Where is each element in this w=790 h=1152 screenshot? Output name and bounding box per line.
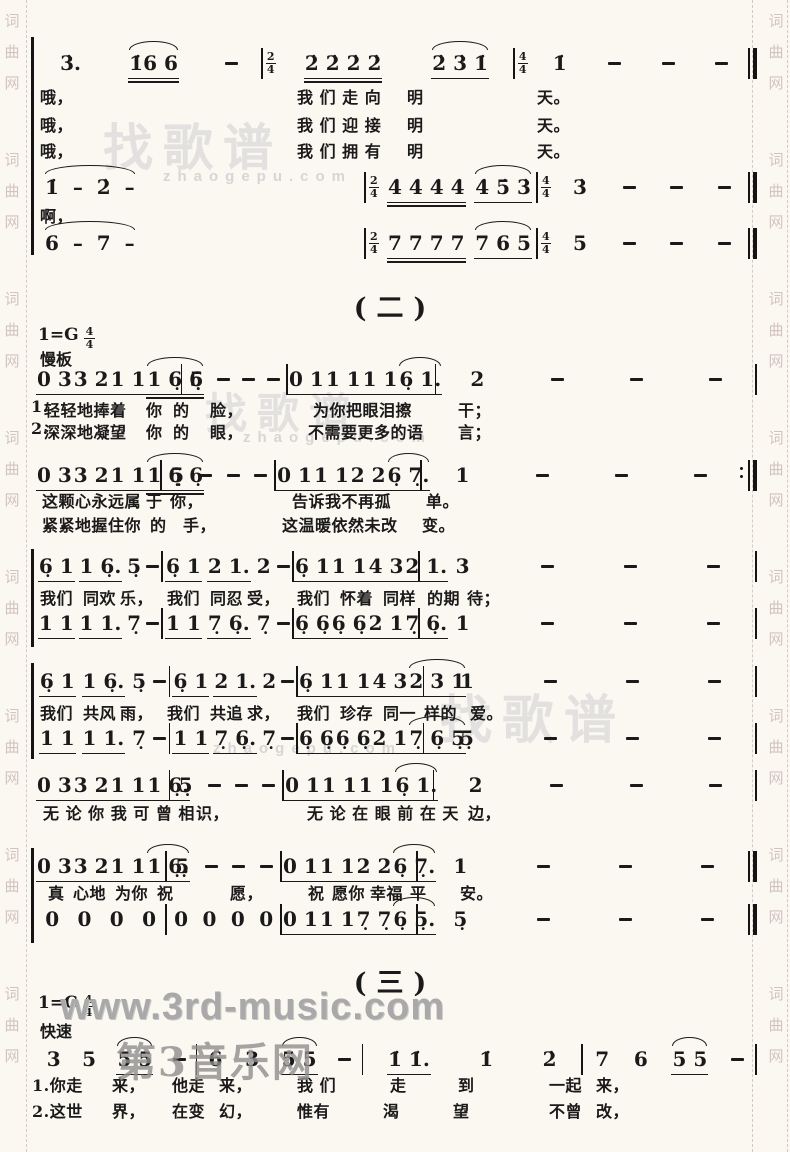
lyric-segment: 啊， xyxy=(40,203,73,227)
note-token: 0 xyxy=(230,906,246,934)
note-token: 6̣ 6̣ xyxy=(294,610,331,639)
rest-dash xyxy=(262,784,275,787)
note-token: 0 1 xyxy=(288,366,325,395)
rest-dash xyxy=(709,784,722,787)
lyric-segment: 无 论 你 我 可 曾 相 xyxy=(43,800,195,824)
side-watermark-char: 网 xyxy=(4,763,19,794)
lyric-segment: 爱。 xyxy=(470,700,503,724)
measure: 1 xyxy=(424,668,755,696)
note-token: 0 xyxy=(76,906,92,934)
watermark-3rd-music-url: www.3rd-music.com xyxy=(60,986,445,1029)
rest-dash xyxy=(731,1058,744,1061)
rest-dash xyxy=(544,680,557,683)
barline xyxy=(755,608,757,639)
rest-dash xyxy=(338,1058,351,1061)
note-token: 7̣ xyxy=(126,610,142,638)
note-token: 1 1 xyxy=(319,853,356,882)
note-token: 2̇ 3̇ 1̇ xyxy=(431,50,489,79)
lyric-segment: 不需要更多的语 xyxy=(308,419,424,443)
note-token: 0 3 xyxy=(36,853,73,882)
note-token: 1 1 xyxy=(362,366,399,395)
rest-dash xyxy=(626,680,639,683)
note-token: 7̣ xyxy=(261,725,277,753)
time-signature: 44 xyxy=(541,175,551,199)
rest-dash xyxy=(254,474,267,477)
lyric-segment: 我 们 迎 接 xyxy=(297,112,381,136)
final-barline xyxy=(748,228,757,259)
lyric-segment: 告诉我不再孤 xyxy=(292,488,391,512)
note-token: 3 xyxy=(46,1046,62,1074)
lyric-segment: 你， xyxy=(170,488,203,512)
side-watermark-char: 曲 xyxy=(768,454,783,485)
lyric-segment: 变。 xyxy=(422,512,455,536)
note-token: 6̣ 1 xyxy=(39,668,76,697)
measure: 4̇ 4̇ 4̇ 4̇4̇ 5̇ 3̇ xyxy=(383,174,537,203)
lyric-segment: 边， xyxy=(468,800,501,824)
measure: 1 11 1.7̣ xyxy=(36,610,161,639)
rest-dash xyxy=(537,865,550,868)
rest-dash xyxy=(267,378,280,381)
rest-dash xyxy=(551,378,564,381)
lyric-segment: 一起 xyxy=(549,1072,582,1096)
note-token: 6 – 7 – xyxy=(44,230,136,258)
measure: 5̣ xyxy=(418,906,748,934)
lyric-segment: 到 xyxy=(458,1072,475,1096)
notation-line-s2-d-v1: 6̣ 11 6̣.5̣6̣ 12 1.26̣ 11 14 32 3 11 xyxy=(36,668,757,704)
note-token: 5̣ xyxy=(174,853,190,881)
note-token: 7̣ 7̣ xyxy=(356,906,393,935)
lyric-segment: 改， xyxy=(596,1098,629,1122)
lyric-segment: 哦， xyxy=(40,84,73,108)
rest-dash xyxy=(701,865,714,868)
note-token: 6̣ 1 xyxy=(172,668,209,697)
lyric-segment: 紧紧地握住你 xyxy=(42,512,141,536)
note-token: 1 1 xyxy=(321,772,358,801)
measure: 1 xyxy=(420,610,756,638)
note-token: 1 xyxy=(455,610,471,638)
note-token: 3 2 xyxy=(73,366,110,395)
rest-dash xyxy=(608,62,621,65)
time-signature: 44 xyxy=(518,51,528,75)
lyric-segment: 渴 xyxy=(383,1098,400,1122)
side-watermark-group: 词曲网 xyxy=(4,562,19,655)
barline xyxy=(755,666,757,697)
lyric-segment: 1.你走 xyxy=(32,1072,83,1096)
note-token: 1 1 xyxy=(331,553,368,582)
rest-dash xyxy=(146,565,159,568)
lyric-segment: 共追 xyxy=(210,700,243,724)
lyric-segment: 待； xyxy=(467,585,500,609)
lyric-line: 真心地为你祝愿，祝愿你幸福平安。 xyxy=(0,880,790,902)
meter-fraction: 4 4 xyxy=(84,326,96,350)
barline xyxy=(755,551,757,582)
lyric-segment: 明 xyxy=(407,138,424,162)
rest-dash xyxy=(670,242,683,245)
barline xyxy=(755,1044,757,1075)
note-token: 6̣ 6̣ xyxy=(298,725,335,754)
rest-dash xyxy=(701,918,714,921)
note-token: 2 xyxy=(256,553,272,581)
lyric-segment: 这颗心永远属 xyxy=(42,488,141,512)
lyric-segment: 的期 xyxy=(427,585,460,609)
lyric-segment: 这温暖依然未改 xyxy=(282,512,398,536)
lyric-segment: 惟有 xyxy=(297,1098,330,1122)
measure: 0 11 11 16̣ 1. xyxy=(284,772,433,801)
note-token: 0 xyxy=(201,906,217,934)
lyric-segment: 的 xyxy=(173,397,190,421)
measure: 3̇ xyxy=(555,174,749,202)
rest-dash xyxy=(153,680,166,683)
side-watermark-char: 网 xyxy=(768,346,783,377)
measure: 0000 xyxy=(36,906,165,934)
note-token: 7̣ 6̣. xyxy=(213,725,257,754)
side-watermark-char: 网 xyxy=(4,346,19,377)
measure: 6̣ 11 6̣.5̣ xyxy=(36,553,161,582)
lyric-segment: 雨， xyxy=(120,700,153,724)
rest-dash xyxy=(624,622,637,625)
lyric-segment: 我 们 走 向 xyxy=(297,84,381,108)
notation-line-s2-f-v2: 000000000 11 17̣ 7̣6̣ 5̣.5̣ xyxy=(36,906,757,942)
note-token: 1 1 xyxy=(335,668,372,697)
measure: 0 11 12 26̣ 7̣. xyxy=(282,853,416,882)
lyric-segment: 我们 xyxy=(40,585,73,609)
watermark-3rd-music-cn: 第3音乐网 xyxy=(116,1030,314,1088)
note-token: 5̣ xyxy=(169,462,185,490)
measure: 0 33 21 11 6̣. xyxy=(36,853,165,882)
barline xyxy=(513,48,515,79)
measure: 0 11 17̣ 7̣6̣ 5̣. xyxy=(282,906,416,935)
measure: 5̣ xyxy=(167,853,280,881)
lyric-segment: 无 论 在 眼 前 在 天 xyxy=(307,800,459,824)
lyric-segment: 脸， xyxy=(210,397,243,421)
final-barline xyxy=(748,904,757,935)
rest-dash xyxy=(277,565,290,568)
barline xyxy=(755,364,757,395)
notation-line-s2-c-v2: 1 11 1.7̣1 17̣ 6̣.7̣6̣ 6̣6̣ 6̣2 17̣ 6̣.1 xyxy=(36,610,757,646)
rest-dash xyxy=(708,680,721,683)
note-token: 2̇ xyxy=(542,1046,558,1074)
note-token: 5 5 xyxy=(671,1046,708,1075)
lyric-segment: 样的 xyxy=(424,700,457,724)
note-token: 5̣ xyxy=(188,366,204,394)
note-token: 1̇6 6 xyxy=(128,50,179,79)
lyric-segment: 言； xyxy=(458,419,491,443)
measure: 1 11 1.7̣ xyxy=(36,725,169,754)
note-token: 2 1 xyxy=(372,725,409,754)
note-token: 4̇ 4̇ 4̇ 4̇ xyxy=(387,174,466,203)
barline xyxy=(536,172,538,203)
measure: 0000 xyxy=(167,906,280,934)
lyric-line: 这颗心永远属于你，告诉我不再孤单。 xyxy=(0,488,790,510)
lyric-segment: 明 xyxy=(407,84,424,108)
note-token: 1 1 xyxy=(319,906,356,935)
rest-dash xyxy=(718,242,731,245)
lyric-segment: 深深地凝望 xyxy=(44,419,127,443)
note-token: 5 xyxy=(572,230,588,258)
note-token: 0 1 xyxy=(284,772,321,801)
lyric-segment: 走 xyxy=(390,1072,407,1096)
lyric-segment: 来， xyxy=(596,1072,629,1096)
rest-dash xyxy=(718,186,731,189)
lyric-line: 啊， xyxy=(0,203,790,225)
time-signature: 24 xyxy=(369,231,379,255)
lyric-line: 哦，我 们 走 向明天。 xyxy=(0,84,790,106)
lyric-line: 我们共风雨，我们共追求，我们珍存同一样的爱。 xyxy=(0,700,790,722)
barline xyxy=(536,228,538,259)
barline xyxy=(261,48,263,79)
measure: 6̣ 6̣6̣ 6̣2 17̣ 6̣ 5̣ xyxy=(298,725,423,754)
rest-dash xyxy=(619,865,632,868)
barline xyxy=(364,228,366,259)
note-token: 2 2 xyxy=(350,462,387,491)
note-token: 3̇. xyxy=(59,50,82,78)
measure: 5̣ xyxy=(182,366,286,394)
note-token: 7 6 5 xyxy=(474,230,532,259)
lyric-segment: 干； xyxy=(458,397,491,421)
lyric-line: 我们同欢乐，我们同忍受，我们怀着同样的期待； xyxy=(0,585,790,607)
lyric-segment: 为你把眼泪擦 xyxy=(313,397,412,421)
note-token: 7̣ 6̣. xyxy=(207,610,251,639)
note-token: 5̣ xyxy=(131,668,147,696)
rest-dash xyxy=(235,784,248,787)
lyric-segment: 在变 xyxy=(172,1098,205,1122)
measure: 1 xyxy=(422,462,740,490)
note-token: 1 1 xyxy=(172,725,209,754)
rest-dash xyxy=(623,242,636,245)
lyric-segment: 的 xyxy=(150,512,167,536)
notation-line-s2-d-v2: 1 11 1.7̣1 17̣ 6̣.7̣6̣ 6̣6̣ 6̣2 17̣ 6̣ 5… xyxy=(36,725,757,761)
note-token: 2 1 xyxy=(368,610,405,639)
rest-dash xyxy=(707,622,720,625)
time-signature: 44 xyxy=(541,231,551,255)
lyric-segment: 天。 xyxy=(537,138,570,162)
side-watermark-char: 曲 xyxy=(4,37,19,68)
final-barline xyxy=(748,172,757,203)
note-token: 2 2 xyxy=(356,853,393,882)
barline xyxy=(364,172,366,203)
lyric-segment: 我们 xyxy=(297,585,330,609)
rest-dash xyxy=(281,680,294,683)
measure: 5̣ xyxy=(424,725,755,753)
rest-dash xyxy=(624,565,637,568)
lyric-segment: 我们 xyxy=(167,700,200,724)
note-token: 6̣ 1 xyxy=(298,668,335,697)
note-token: 0 3 xyxy=(36,462,73,491)
note-token: 5̣ xyxy=(178,772,194,800)
note-token: 2 xyxy=(469,366,485,394)
note-token: 1 1 xyxy=(358,772,395,801)
lyric-segment: 真 xyxy=(48,880,65,904)
note-token: 7 7 7 7 xyxy=(387,230,466,259)
measure: 2̇ 2̇ 2̇ 2̇2̇ 3̇ 1̇ xyxy=(280,50,514,79)
lyric-segment: 同忍 xyxy=(210,585,243,609)
notation-line-s2-c-v1: 6̣ 11 6̣.5̣6̣ 12 1.26̣ 11 14 32 1.3 xyxy=(36,553,757,589)
side-watermark-char: 词 xyxy=(768,6,783,37)
section-two-header: (二) xyxy=(0,286,790,325)
sheet-music-page: 词曲网词曲网词曲网词曲网词曲网词曲网词曲网词曲网 词曲网词曲网词曲网词曲网词曲网… xyxy=(0,0,790,1152)
note-token: 6̣ 6̣ xyxy=(335,725,372,754)
side-watermark-char: 曲 xyxy=(4,1010,19,1041)
note-token: 1 1. xyxy=(82,725,126,754)
rest-dash xyxy=(662,62,675,65)
lyric-segment: 我们 xyxy=(40,700,73,724)
note-token: 3̇ xyxy=(572,174,588,202)
lyric-segment: 求， xyxy=(247,700,280,724)
notation-line-s1-l3: 6 – 7 –247 7 7 77 6 5445 xyxy=(36,230,757,266)
lyric-segment: 2.这世 xyxy=(32,1098,83,1122)
note-token: 2 1. xyxy=(213,668,257,697)
measure: 6̣ 11 6̣.5̣ xyxy=(36,668,169,697)
lyric-segment: 哦， xyxy=(40,138,73,162)
note-token: 7̣ xyxy=(256,610,272,638)
note-token: 2 xyxy=(468,772,484,800)
note-token: 1 1 xyxy=(38,610,75,639)
note-token: 1̇ xyxy=(478,1046,494,1074)
note-token: 0 xyxy=(173,906,189,934)
measure: 1 17̣ 6̣.7̣ xyxy=(163,610,293,639)
side-watermark-char: 网 xyxy=(768,1041,783,1072)
lyric-segment: 珍存 xyxy=(340,700,373,724)
lyric-line: 2.这世界，在变幻，惟有渴望不曾改， xyxy=(0,1098,790,1120)
lyric-segment: 幻， xyxy=(219,1098,252,1122)
lyric-segment: 同样 xyxy=(383,585,416,609)
lyric-segment: 手， xyxy=(183,512,216,536)
note-token: 0 3 xyxy=(36,772,73,801)
meter-numerator: 4 xyxy=(84,326,96,339)
measure: 1̇ xyxy=(532,50,749,78)
note-token: 1̇ xyxy=(552,50,568,78)
note-token: 4 3 xyxy=(368,553,405,582)
measure: 2 xyxy=(436,366,755,394)
note-token: 7 xyxy=(594,1046,610,1074)
measure: 2 xyxy=(434,772,755,800)
side-watermark-char: 网 xyxy=(4,902,19,933)
lyric-segment: 于 xyxy=(146,488,163,512)
measure: 6̣ 12 1.2 xyxy=(170,668,296,697)
lyric-segment: 哦， xyxy=(40,112,73,136)
measure: 0 11 12 26̣ 7̣. xyxy=(276,462,420,491)
rest-dash xyxy=(715,62,728,65)
note-token: 1̇ 1̇. xyxy=(387,1046,431,1075)
side-watermark-group: 词曲网 xyxy=(768,562,783,655)
rest-dash xyxy=(242,378,255,381)
note-token: 0 1 xyxy=(282,906,319,935)
rest-dash xyxy=(550,784,563,787)
note-token: 1 1 xyxy=(39,725,76,754)
note-token: 7̣ xyxy=(131,725,147,753)
note-token: 4 3 xyxy=(372,668,409,697)
measure: 5̣ xyxy=(162,462,275,490)
rest-dash xyxy=(217,378,230,381)
rest-dash xyxy=(277,622,290,625)
lyric-segment: 识， xyxy=(196,800,229,824)
lyric-line: 哦，我 们 迎 接明天。 xyxy=(0,112,790,134)
side-watermark-char: 网 xyxy=(4,1041,19,1072)
note-token: 5̣ xyxy=(452,906,468,934)
rest-dash xyxy=(619,918,632,921)
note-token: 6̣ 1 xyxy=(165,553,202,582)
rest-dash xyxy=(541,622,554,625)
measure: 6̣ 12 1.2 xyxy=(163,553,293,582)
rest-dash xyxy=(146,622,159,625)
note-token: 6̣ 1 xyxy=(294,553,331,582)
side-watermark-char: 曲 xyxy=(768,37,783,68)
rest-dash xyxy=(544,737,557,740)
rest-dash xyxy=(208,784,221,787)
lyric-line: 紧紧地握住你的手，这温暖依然未改变。 xyxy=(0,512,790,534)
key-label: 1=G xyxy=(38,325,79,345)
rest-dash xyxy=(227,474,240,477)
note-token: 6̣ 1. xyxy=(394,772,438,801)
lyric-line: 无 论 你 我 可 曾 相识，无 论 在 眼 前 在 天边， xyxy=(0,800,790,822)
rest-dash xyxy=(205,865,218,868)
rest-dash xyxy=(670,186,683,189)
measure: 0 33 21 11 6̣ 6̣ xyxy=(36,366,181,395)
lyric-segment: 平 xyxy=(410,880,427,904)
rest-dash xyxy=(153,737,166,740)
note-token: 0 3 xyxy=(36,366,73,395)
rest-dash xyxy=(260,865,273,868)
note-token: 1̇ – 2̇ – xyxy=(44,174,136,202)
lyric-segment: 愿， xyxy=(230,880,263,904)
rest-dash xyxy=(630,784,643,787)
note-token: 1 1 xyxy=(313,462,350,491)
note-token: 0 xyxy=(258,906,274,934)
note-token: 5̣ xyxy=(126,553,142,581)
note-token: 1 1 xyxy=(110,366,147,395)
lyric-segment: 单。 xyxy=(426,488,459,512)
measure: 0 33 21 11 6̣ 6̣ xyxy=(36,462,160,491)
note-token: 1 1 xyxy=(110,462,147,491)
measure: 1̇ – 2̇ – xyxy=(36,174,364,202)
lyric-segment: 共风 xyxy=(83,700,116,724)
note-token: 0 xyxy=(109,906,125,934)
note-token: 4̇ 5̇ 3̇ xyxy=(474,174,532,203)
rest-dash xyxy=(709,378,722,381)
rest-dash xyxy=(630,378,643,381)
side-watermark-char: 网 xyxy=(768,902,783,933)
note-token: 3 2 xyxy=(73,462,110,491)
measure: 5̣ xyxy=(170,772,282,800)
repeat-end-barline xyxy=(740,460,757,491)
side-watermark-char: 曲 xyxy=(768,732,783,763)
note-token: 2̇ 2̇ 2̇ 2̇ xyxy=(304,50,383,79)
lyric-segment: 你 xyxy=(146,419,163,443)
measure: 5 xyxy=(555,230,749,258)
lyric-segment: 愿你 xyxy=(332,880,365,904)
note-token: 1 1 xyxy=(110,853,147,882)
measure: 1 xyxy=(418,853,748,881)
lyric-segment: 我 们 拥 有 xyxy=(297,138,381,162)
rest-dash xyxy=(232,865,245,868)
lyric-segment: 祝 xyxy=(308,880,325,904)
measure: 7 7 7 77 6 5 xyxy=(383,230,537,259)
note-token: 6̣ 1 xyxy=(38,553,75,582)
lyric-segment: 天。 xyxy=(537,112,570,136)
measure: 1 17̣ 6̣.7̣ xyxy=(170,725,296,754)
note-token: 6 xyxy=(633,1046,649,1074)
note-token: 1 1 xyxy=(165,610,202,639)
side-watermark-char: 词 xyxy=(4,6,19,37)
note-token: 0 1 xyxy=(282,853,319,882)
lyric-segment: 同一 xyxy=(383,700,416,724)
lyric-segment: 我们 xyxy=(167,585,200,609)
rest-dash xyxy=(694,474,707,477)
rest-dash xyxy=(615,474,628,477)
time-signature: 24 xyxy=(266,51,276,75)
lyric-segment: 的 xyxy=(173,419,190,443)
lyric-segment: 幸福 xyxy=(370,880,403,904)
